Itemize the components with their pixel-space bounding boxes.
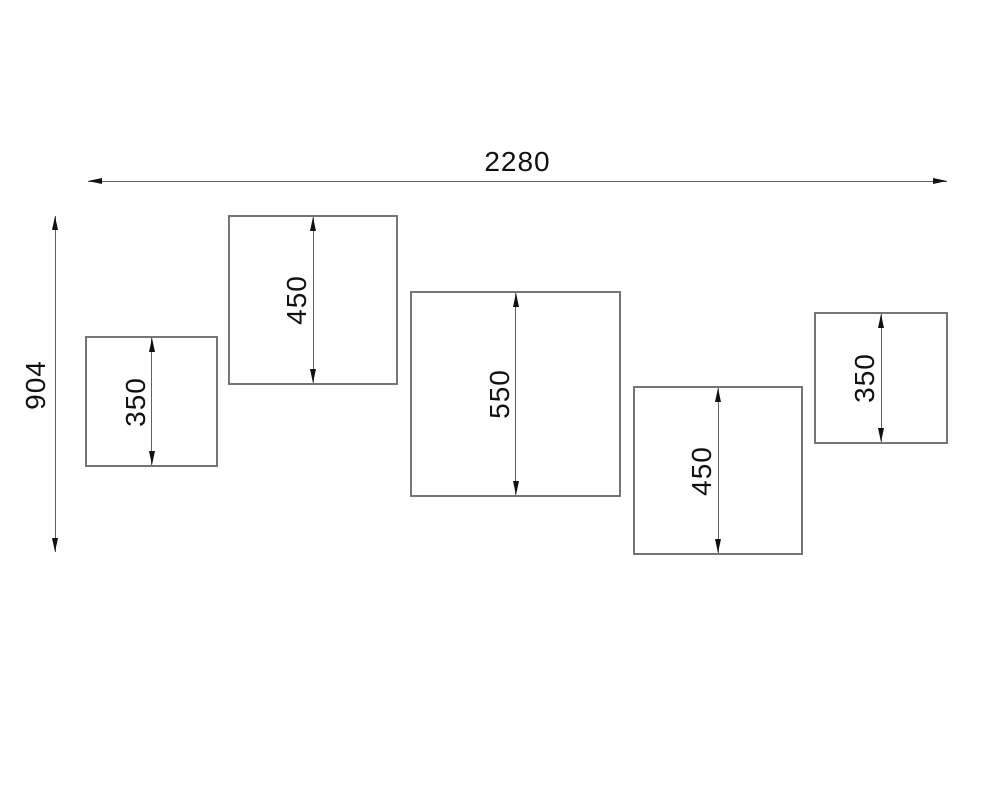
panel-1-bottom-arrowhead [149, 451, 155, 465]
overall-height-bottom-arrowhead [52, 538, 58, 552]
overall-width-dimension-line [88, 181, 947, 182]
panel-4-dimension-line [718, 388, 719, 553]
technical-drawing-canvas: 2280 904 350 450 550 450 350 [0, 0, 995, 796]
panel-5: 350 [814, 312, 948, 444]
panel-2-top-arrowhead [310, 217, 316, 231]
panel-5-top-arrowhead [878, 314, 884, 328]
panel-3-size-label: 550 [485, 369, 515, 419]
panel-5-bottom-arrowhead [878, 428, 884, 442]
panel-1: 350 [85, 336, 218, 467]
overall-height-dimension-label: 904 [21, 360, 51, 410]
panel-4-bottom-arrowhead [715, 539, 721, 553]
panel-1-dimension-line [151, 338, 152, 465]
panel-5-size-label: 350 [850, 353, 880, 403]
panel-1-top-arrowhead [149, 338, 155, 352]
panel-2-bottom-arrowhead [310, 369, 316, 383]
panel-3: 550 [410, 291, 621, 497]
panel-2: 450 [228, 215, 398, 385]
panel-4: 450 [633, 386, 803, 555]
panel-2-dimension-line [313, 217, 314, 383]
overall-width-right-arrowhead [933, 178, 947, 184]
overall-height-dimension-line [55, 216, 56, 552]
overall-width-dimension-label: 2280 [88, 147, 947, 177]
panel-3-top-arrowhead [513, 293, 519, 307]
panel-1-size-label: 350 [121, 377, 151, 427]
panel-2-size-label: 450 [282, 275, 312, 325]
overall-height-top-arrowhead [52, 216, 58, 230]
panel-5-dimension-line [881, 314, 882, 442]
overall-width-left-arrowhead [88, 178, 102, 184]
panel-4-size-label: 450 [687, 446, 717, 496]
panel-3-dimension-line [515, 293, 516, 495]
panel-4-top-arrowhead [715, 388, 721, 402]
panel-3-bottom-arrowhead [513, 481, 519, 495]
